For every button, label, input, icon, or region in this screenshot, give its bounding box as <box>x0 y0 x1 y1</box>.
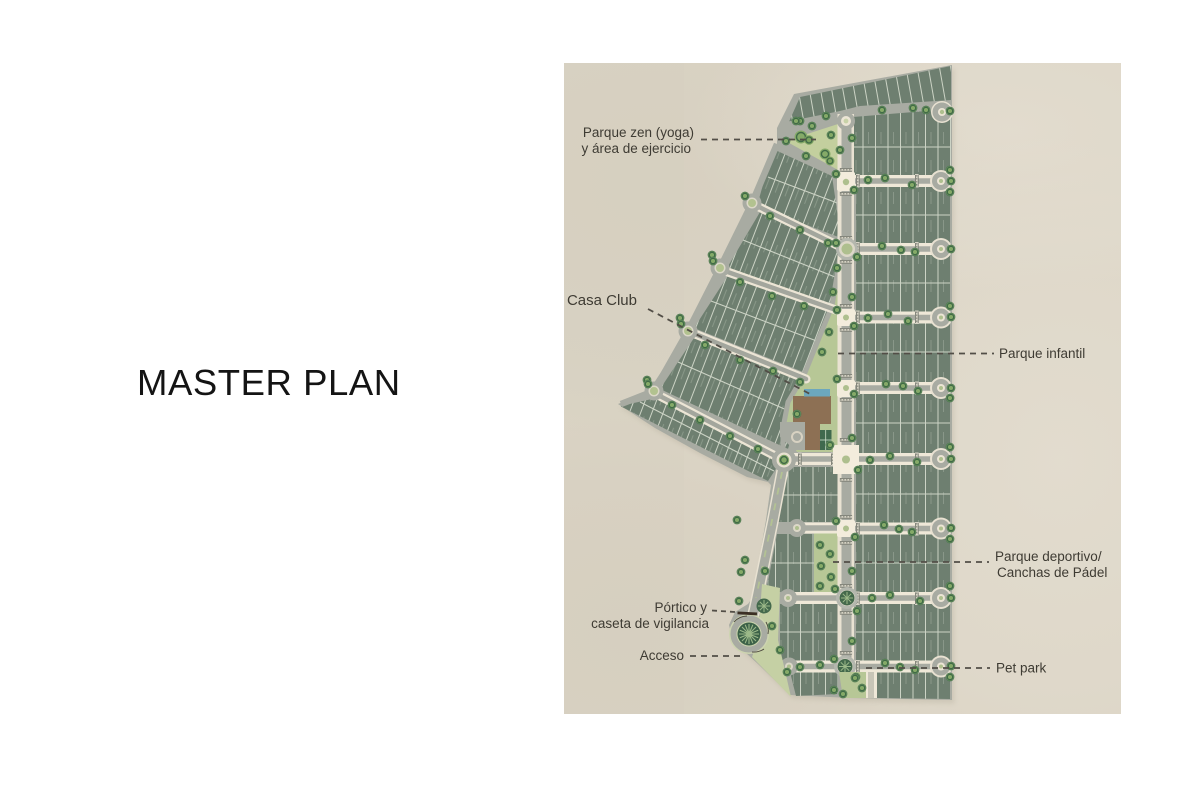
svg-text:Parque deportivo/: Parque deportivo/ <box>995 549 1102 564</box>
svg-text:Pet park: Pet park <box>996 661 1047 676</box>
svg-text:Casa Club: Casa Club <box>567 292 637 309</box>
svg-text:Canchas de Pádel: Canchas de Pádel <box>997 565 1107 580</box>
svg-text:Pórtico y: Pórtico y <box>654 600 707 615</box>
svg-text:Acceso: Acceso <box>640 648 684 663</box>
svg-text:caseta de vigilancia: caseta de vigilancia <box>591 616 709 631</box>
svg-text:Parque zen (yoga): Parque zen (yoga) <box>583 125 694 140</box>
svg-text:Parque infantil: Parque infantil <box>999 346 1085 361</box>
svg-text:y área de ejercicio: y área de ejercicio <box>581 141 691 156</box>
